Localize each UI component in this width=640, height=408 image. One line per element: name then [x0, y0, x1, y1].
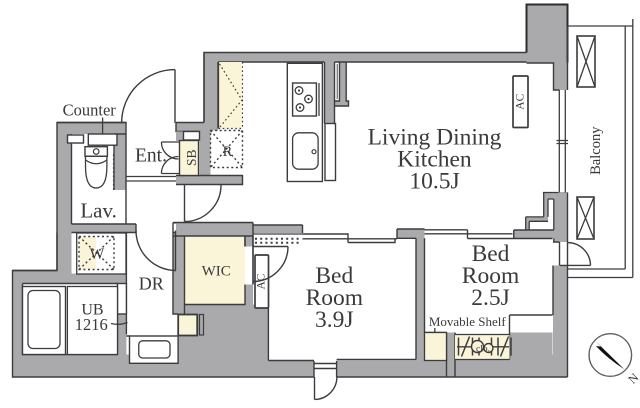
svg-text:SB: SB — [184, 149, 199, 166]
svg-text:clo.: clo. — [476, 345, 490, 355]
svg-text:R: R — [223, 144, 233, 160]
svg-text:Lav.: Lav. — [80, 199, 117, 223]
svg-text:Movable Shelf: Movable Shelf — [429, 314, 507, 329]
svg-text:W: W — [90, 246, 105, 263]
svg-text:1216: 1216 — [75, 315, 108, 334]
svg-text:WIC: WIC — [202, 264, 231, 280]
svg-text:Ent.: Ent. — [135, 146, 167, 167]
svg-text:3.9J: 3.9J — [315, 307, 354, 333]
svg-text:2.5J: 2.5J — [471, 285, 510, 311]
svg-text:10.5J: 10.5J — [409, 169, 459, 195]
svg-text:Balcony: Balcony — [588, 126, 604, 175]
svg-text:DR: DR — [139, 274, 164, 294]
svg-text:Counter: Counter — [63, 101, 117, 120]
svg-text:AC: AC — [515, 93, 527, 109]
